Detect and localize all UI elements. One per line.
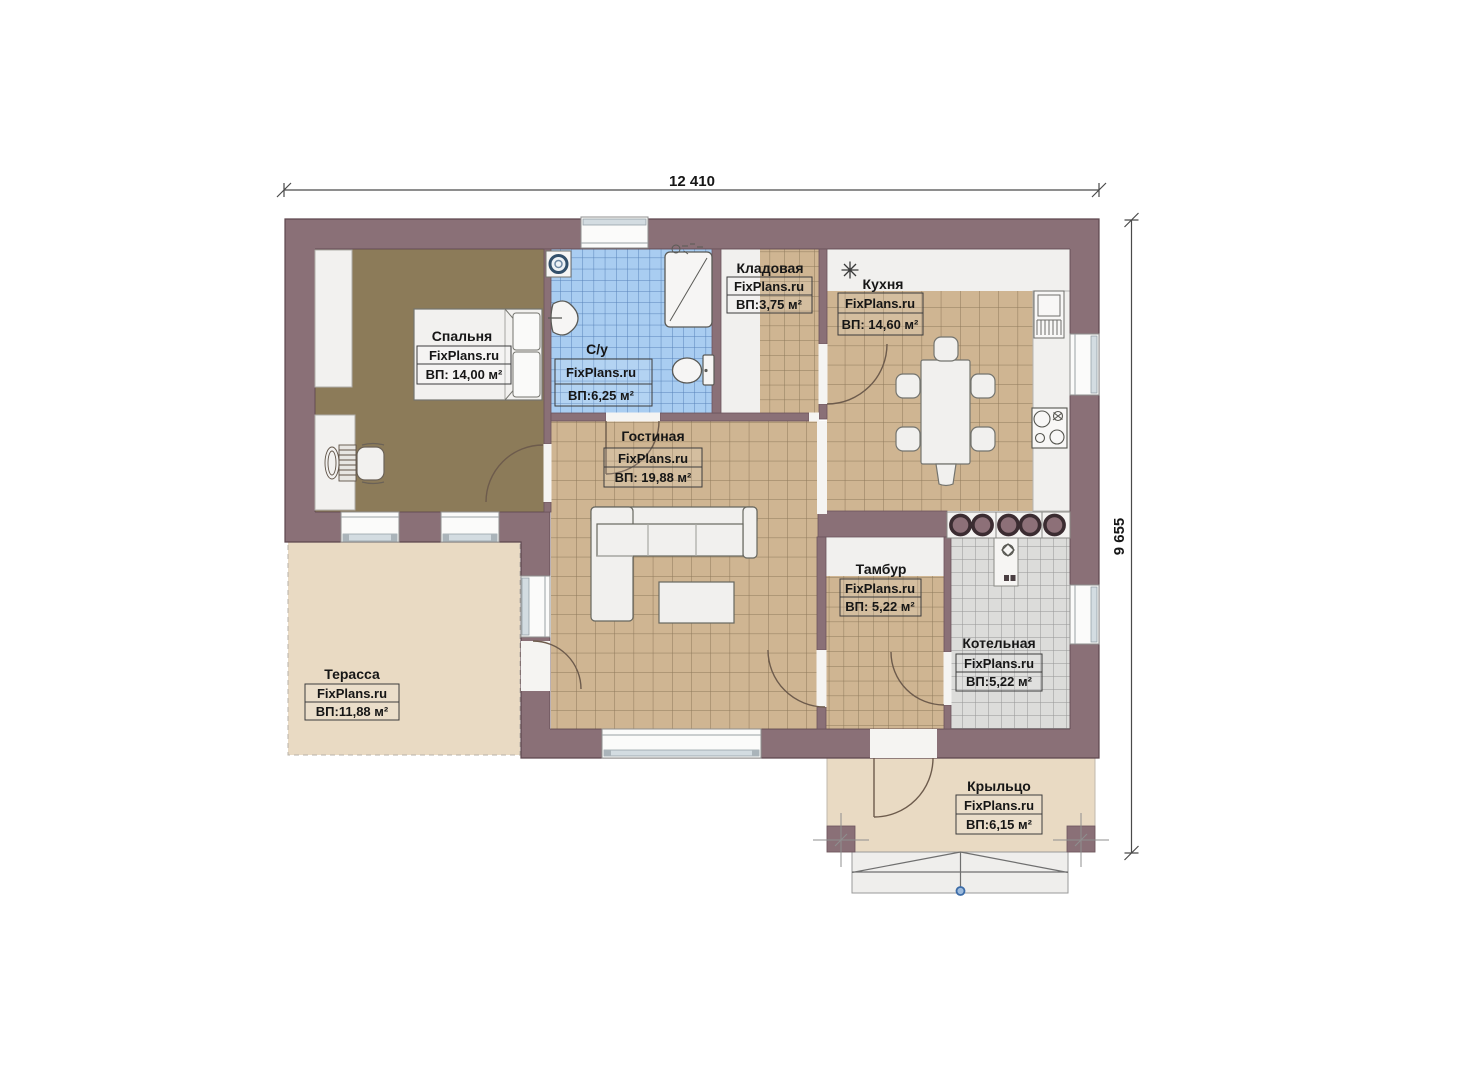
svg-text:Кладовая: Кладовая: [736, 260, 803, 276]
svg-text:Тамбур: Тамбур: [856, 561, 907, 577]
svg-text:ВП:6,25 м²: ВП:6,25 м²: [568, 388, 635, 403]
svg-text:ВП:6,15 м²: ВП:6,15 м²: [966, 817, 1033, 832]
svg-text:FixPlans.ru: FixPlans.ru: [964, 656, 1034, 671]
svg-text:ВП: 19,88 м²: ВП: 19,88 м²: [615, 470, 692, 485]
svg-text:Кухня: Кухня: [863, 276, 904, 292]
svg-text:Спальня: Спальня: [432, 328, 492, 344]
svg-text:Крыльцо: Крыльцо: [967, 778, 1031, 794]
svg-text:9 655: 9 655: [1111, 518, 1128, 556]
svg-text:FixPlans.ru: FixPlans.ru: [618, 451, 688, 466]
svg-text:FixPlans.ru: FixPlans.ru: [964, 798, 1034, 813]
svg-text:Котельная: Котельная: [962, 635, 1035, 651]
svg-text:ВП: 5,22 м²: ВП: 5,22 м²: [845, 599, 915, 614]
svg-text:FixPlans.ru: FixPlans.ru: [317, 686, 387, 701]
svg-text:ВП: 14,00 м²: ВП: 14,00 м²: [426, 367, 503, 382]
svg-text:ВП:3,75 м²: ВП:3,75 м²: [736, 297, 803, 312]
svg-text:С/у: С/у: [586, 341, 608, 357]
svg-text:FixPlans.ru: FixPlans.ru: [845, 581, 915, 596]
svg-text:Терасса: Терасса: [324, 666, 380, 682]
svg-text:FixPlans.ru: FixPlans.ru: [734, 279, 804, 294]
svg-text:FixPlans.ru: FixPlans.ru: [566, 365, 636, 380]
svg-text:FixPlans.ru: FixPlans.ru: [845, 296, 915, 311]
svg-text:ВП:11,88 м²: ВП:11,88 м²: [316, 704, 389, 719]
svg-text:Гостиная: Гостиная: [621, 428, 684, 444]
svg-text:12 410: 12 410: [669, 173, 715, 190]
svg-text:ВП:5,22 м²: ВП:5,22 м²: [966, 674, 1033, 689]
svg-text:ВП: 14,60 м²: ВП: 14,60 м²: [842, 317, 919, 332]
svg-text:FixPlans.ru: FixPlans.ru: [429, 348, 499, 363]
